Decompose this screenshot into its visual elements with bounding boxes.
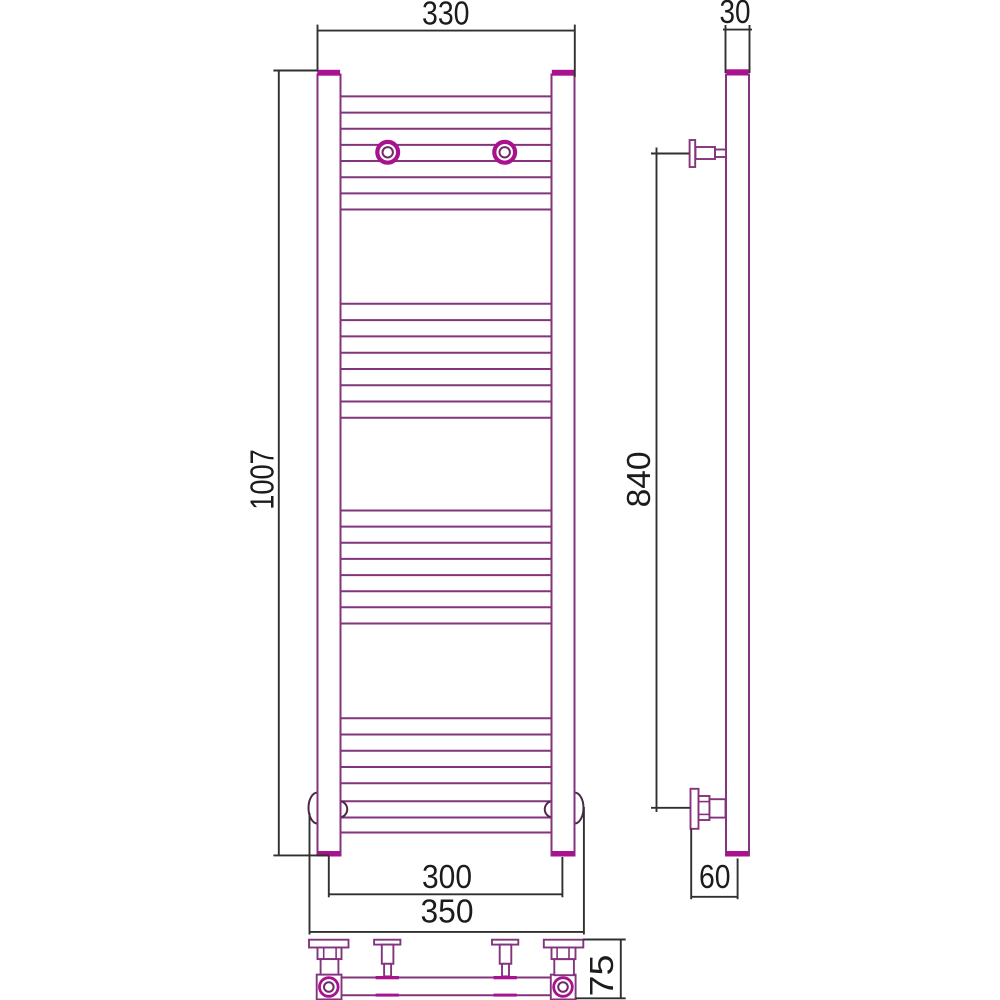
svg-text:1007: 1007 [244,449,281,510]
svg-text:840: 840 [620,451,657,507]
svg-text:330: 330 [422,0,470,32]
svg-text:30: 30 [720,0,751,30]
svg-text:60: 60 [699,858,731,895]
svg-text:350: 350 [421,893,474,930]
svg-text:300: 300 [422,858,472,895]
svg-text:75: 75 [583,955,620,997]
